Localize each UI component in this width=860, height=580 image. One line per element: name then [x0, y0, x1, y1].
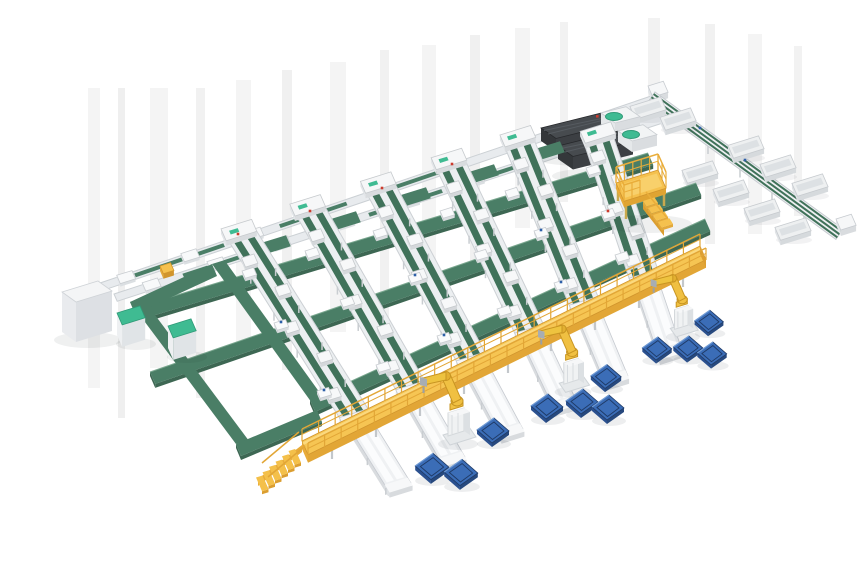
sensor-dot-blue [414, 274, 417, 277]
bg-stripe [196, 88, 205, 398]
laminator-machine-mint-cap [623, 131, 640, 139]
sensor-dot-red [607, 210, 610, 213]
sensor-dot-blue [280, 321, 283, 324]
factory-render-canvas: Automated panel production line - isomet… [0, 0, 860, 580]
sensor-dot-red [237, 233, 240, 236]
sensor-dot-blue [744, 159, 747, 162]
bg-stripe [118, 88, 125, 418]
sensor-dot-blue [699, 127, 702, 130]
sensor-dot-blue [323, 389, 326, 392]
laminator-machine-indicator [596, 115, 599, 118]
factory-isometric-illustration [0, 0, 860, 580]
sensor-dot-blue [540, 229, 543, 232]
sensor-dot-red [451, 163, 454, 166]
laminator-machine-mint-cap [606, 113, 623, 121]
shadow [604, 215, 692, 233]
sensor-dot-blue [560, 281, 563, 284]
sensor-dot-red [381, 187, 384, 190]
sensor-dot-blue [443, 334, 446, 337]
sensor-dot-red [309, 210, 312, 213]
